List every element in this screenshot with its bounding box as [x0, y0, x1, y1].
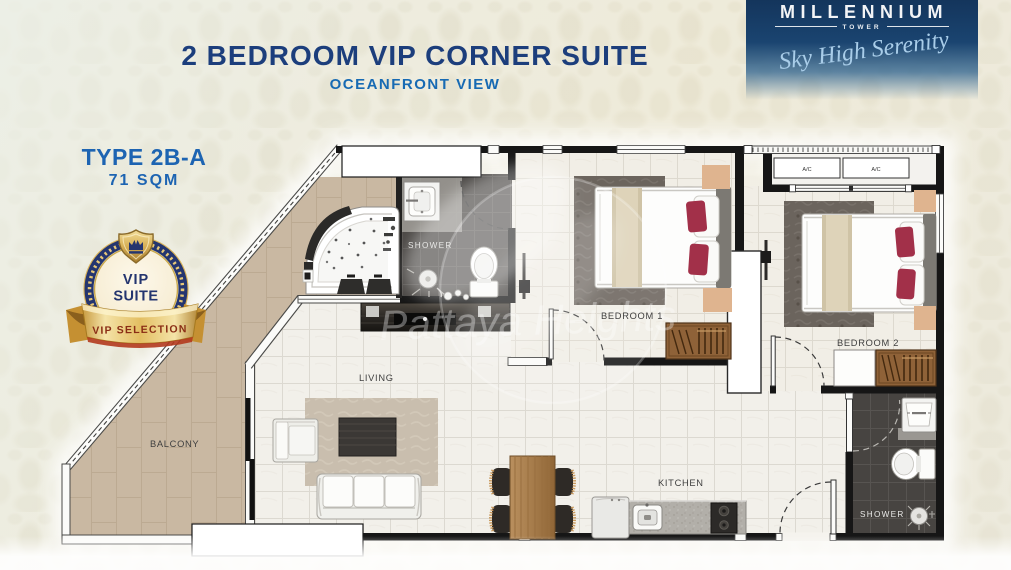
svg-text:KITCHEN: KITCHEN — [658, 478, 704, 488]
svg-text:LIVING: LIVING — [359, 373, 394, 383]
svg-text:SUITE: SUITE — [113, 289, 158, 305]
svg-text:BALCONY: BALCONY — [150, 439, 199, 449]
svg-text:BEDROOM 2: BEDROOM 2 — [837, 338, 899, 348]
svg-text:VIP SELECTION: VIP SELECTION — [92, 323, 188, 337]
svg-text:SHOWER: SHOWER — [408, 241, 453, 250]
svg-text:SHOWER: SHOWER — [860, 510, 905, 519]
svg-text:A/C: A/C — [802, 167, 811, 173]
svg-text:VIP: VIP — [123, 272, 149, 288]
svg-text:A/C: A/C — [871, 167, 880, 173]
svg-text:BEDROOM 1: BEDROOM 1 — [601, 311, 663, 321]
